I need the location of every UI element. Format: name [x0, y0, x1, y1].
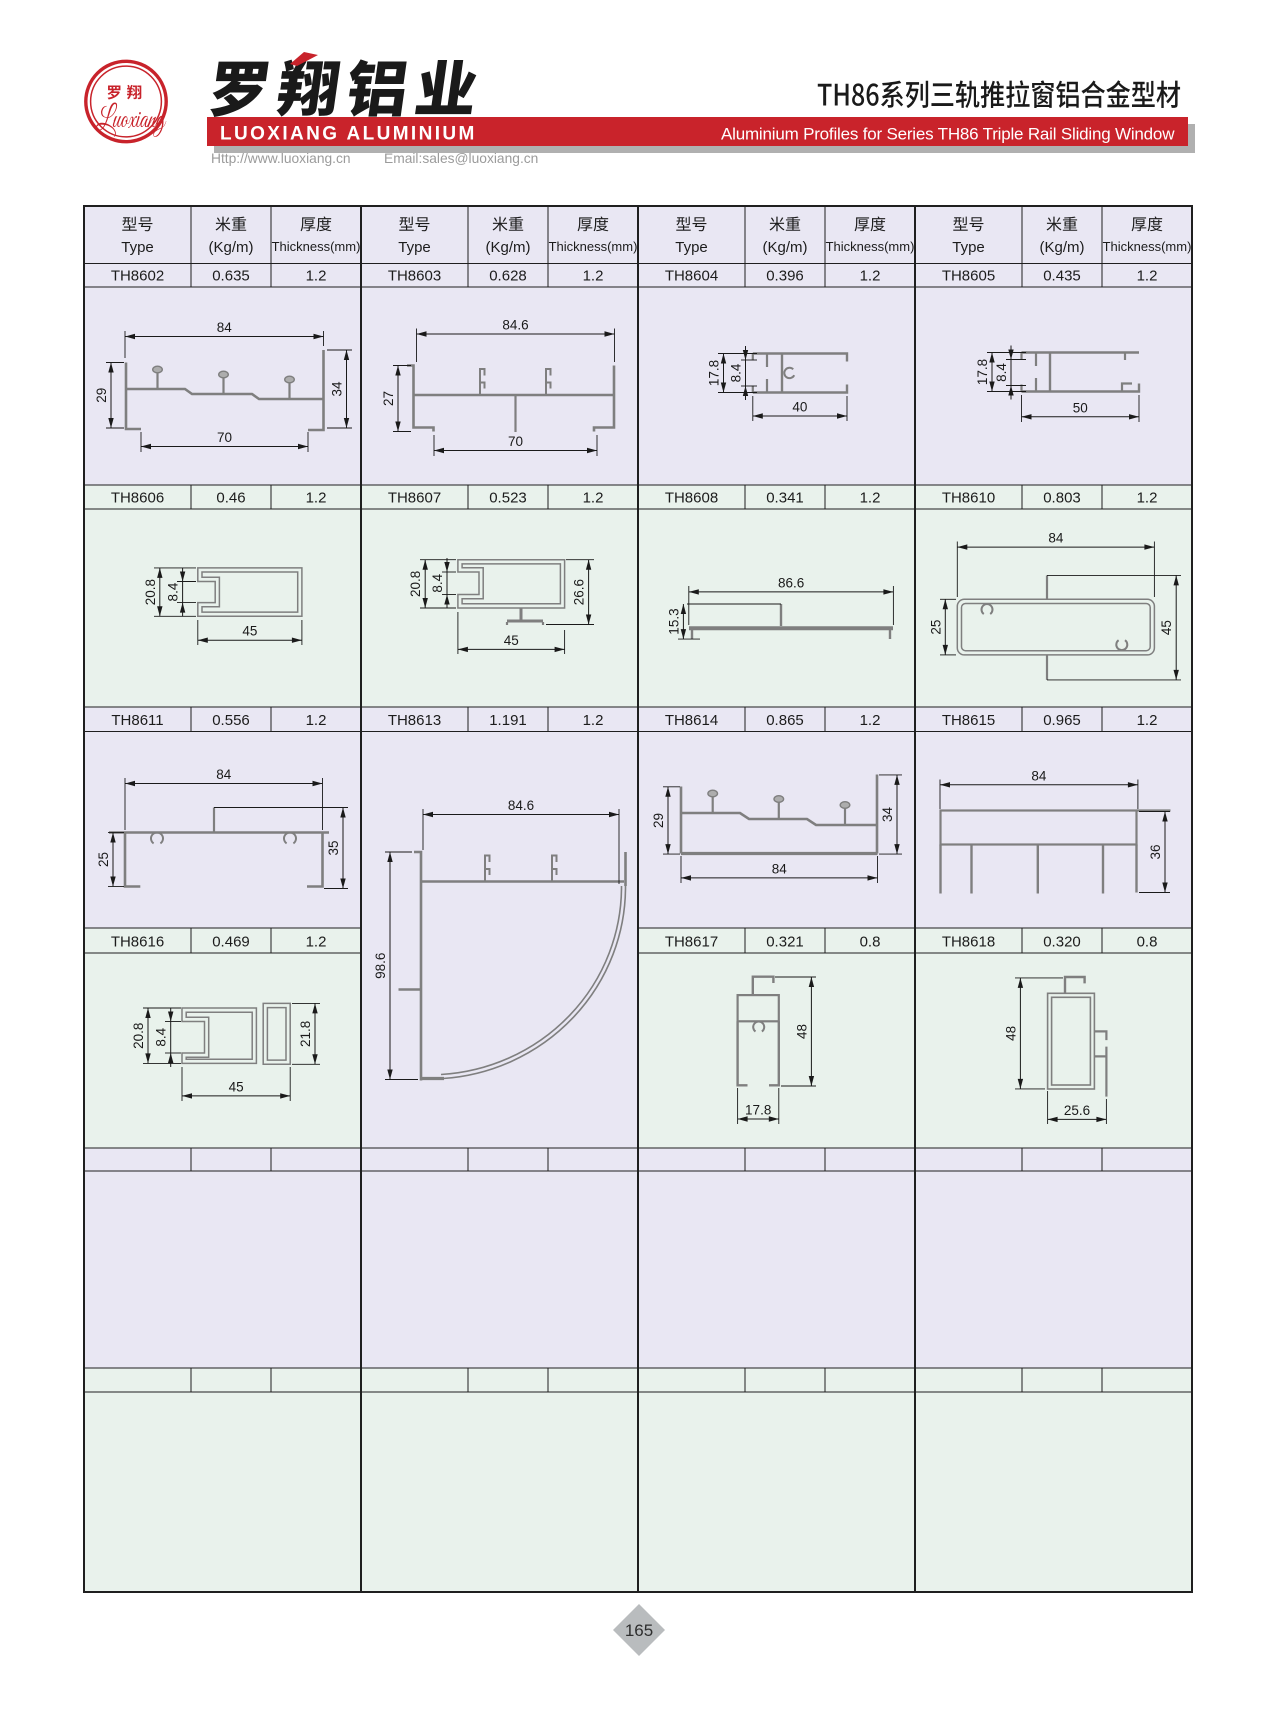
svg-text:1.2: 1.2 [860, 712, 881, 729]
svg-text:25: 25 [96, 852, 111, 867]
svg-text:17.8: 17.8 [707, 360, 722, 386]
svg-text:TH8618: TH8618 [942, 934, 995, 951]
svg-text:0.8: 0.8 [1137, 934, 1158, 951]
svg-text:0.523: 0.523 [489, 490, 527, 507]
svg-text:0.628: 0.628 [489, 268, 527, 285]
svg-text:165: 165 [625, 1621, 653, 1640]
svg-text:84: 84 [772, 861, 788, 876]
svg-text:35: 35 [326, 840, 341, 855]
svg-text:8.4: 8.4 [994, 363, 1009, 382]
svg-text:70: 70 [217, 430, 232, 445]
svg-text:Thickness(mm): Thickness(mm) [272, 239, 361, 254]
svg-text:84.6: 84.6 [508, 798, 534, 813]
svg-text:TH8616: TH8616 [111, 934, 164, 951]
svg-text:34: 34 [330, 381, 345, 397]
svg-text:TH8613: TH8613 [388, 712, 441, 729]
svg-text:0.396: 0.396 [766, 268, 804, 285]
svg-text:84: 84 [216, 767, 232, 782]
svg-text:84: 84 [1031, 768, 1047, 783]
svg-text:TH8604: TH8604 [665, 268, 718, 285]
svg-text:98.6: 98.6 [373, 953, 388, 979]
svg-text:1.191: 1.191 [489, 712, 527, 729]
svg-text:1.2: 1.2 [1137, 268, 1158, 285]
svg-text:1.2: 1.2 [306, 490, 327, 507]
svg-text:45: 45 [504, 633, 519, 648]
svg-text:0.469: 0.469 [212, 934, 250, 951]
svg-text:(Kg/m): (Kg/m) [209, 239, 254, 256]
svg-text:1.2: 1.2 [583, 268, 604, 285]
svg-text:0.865: 0.865 [766, 712, 804, 729]
svg-text:29: 29 [94, 388, 109, 403]
svg-text:70: 70 [508, 434, 523, 449]
svg-text:1.2: 1.2 [1137, 712, 1158, 729]
svg-text:Type: Type [398, 239, 431, 256]
svg-text:1.2: 1.2 [1137, 490, 1158, 507]
svg-text:TH8611: TH8611 [111, 712, 163, 729]
svg-text:Thickness(mm): Thickness(mm) [1103, 239, 1192, 254]
svg-text:1.2: 1.2 [306, 934, 327, 951]
svg-text:Thickness(mm): Thickness(mm) [826, 239, 915, 254]
svg-text:Type: Type [952, 239, 985, 256]
svg-text:0.320: 0.320 [1043, 934, 1081, 951]
svg-text:36: 36 [1148, 844, 1163, 859]
svg-text:86.6: 86.6 [778, 575, 804, 590]
svg-text:48: 48 [1003, 1026, 1018, 1041]
svg-text:LUOXIANG ALUMINIUM: LUOXIANG ALUMINIUM [220, 124, 477, 145]
svg-text:TH8608: TH8608 [665, 490, 718, 507]
svg-text:TH8615: TH8615 [942, 712, 995, 729]
svg-text:0.803: 0.803 [1043, 490, 1081, 507]
svg-text:0.965: 0.965 [1043, 712, 1081, 729]
svg-text:Thickness(mm): Thickness(mm) [549, 239, 638, 254]
svg-text:1.2: 1.2 [306, 712, 327, 729]
svg-text:25: 25 [928, 620, 943, 635]
svg-text:(Kg/m): (Kg/m) [486, 239, 531, 256]
svg-text:Aluminium Profiles for Series: Aluminium Profiles for Series TH86 Tripl… [721, 125, 1175, 144]
svg-text:1.2: 1.2 [306, 268, 327, 285]
svg-text:0.556: 0.556 [212, 712, 250, 729]
svg-text:TH8603: TH8603 [388, 268, 441, 285]
svg-text:TH8614: TH8614 [665, 712, 718, 729]
svg-text:0.46: 0.46 [216, 490, 245, 507]
svg-text:25.6: 25.6 [1064, 1103, 1090, 1118]
svg-text:8.4: 8.4 [166, 582, 181, 601]
svg-text:20.8: 20.8 [143, 579, 158, 605]
svg-text:21.8: 21.8 [298, 1021, 313, 1047]
svg-text:84: 84 [217, 320, 233, 335]
svg-text:TH8607: TH8607 [388, 490, 441, 507]
svg-text:1.2: 1.2 [583, 490, 604, 507]
svg-text:20.8: 20.8 [408, 571, 423, 597]
svg-text:(Kg/m): (Kg/m) [1040, 239, 1085, 256]
svg-text:TH8606: TH8606 [111, 490, 164, 507]
svg-text:17.8: 17.8 [745, 1103, 771, 1118]
svg-text:8.4: 8.4 [729, 363, 744, 382]
svg-text:20.8: 20.8 [131, 1023, 146, 1049]
svg-text:84: 84 [1048, 531, 1064, 546]
svg-text:0.435: 0.435 [1043, 268, 1081, 285]
svg-text:1.2: 1.2 [860, 268, 881, 285]
svg-text:TH8605: TH8605 [942, 268, 995, 285]
svg-text:TH8610: TH8610 [942, 490, 995, 507]
svg-text:26.6: 26.6 [572, 579, 587, 605]
svg-text:8.4: 8.4 [430, 573, 445, 592]
svg-text:Type: Type [121, 239, 154, 256]
svg-text:27: 27 [381, 391, 396, 406]
svg-text:0.321: 0.321 [766, 934, 804, 951]
svg-text:1.2: 1.2 [583, 712, 604, 729]
svg-text:Http://www.luoxiang.cn: Http://www.luoxiang.cn [211, 151, 351, 166]
svg-text:0.635: 0.635 [212, 268, 250, 285]
svg-text:40: 40 [792, 400, 807, 415]
svg-text:50: 50 [1073, 400, 1088, 415]
svg-text:TH8602: TH8602 [111, 268, 164, 285]
svg-text:45: 45 [229, 1079, 244, 1094]
svg-text:0.341: 0.341 [766, 490, 804, 507]
svg-text:TH8617: TH8617 [665, 934, 718, 951]
svg-text:17.8: 17.8 [975, 359, 990, 385]
svg-text:Type: Type [675, 239, 708, 256]
svg-text:34: 34 [880, 807, 895, 823]
svg-text:29: 29 [651, 813, 666, 828]
svg-text:45: 45 [242, 624, 257, 639]
svg-text:15.3: 15.3 [666, 608, 681, 634]
svg-text:45: 45 [1159, 620, 1174, 635]
svg-text:48: 48 [794, 1024, 809, 1039]
svg-text:1.2: 1.2 [860, 490, 881, 507]
svg-text:Email:sales@luoxiang.cn: Email:sales@luoxiang.cn [384, 151, 538, 166]
svg-text:84.6: 84.6 [502, 318, 528, 333]
svg-text:(Kg/m): (Kg/m) [763, 239, 808, 256]
svg-text:8.4: 8.4 [154, 1027, 169, 1046]
svg-text:0.8: 0.8 [860, 934, 881, 951]
